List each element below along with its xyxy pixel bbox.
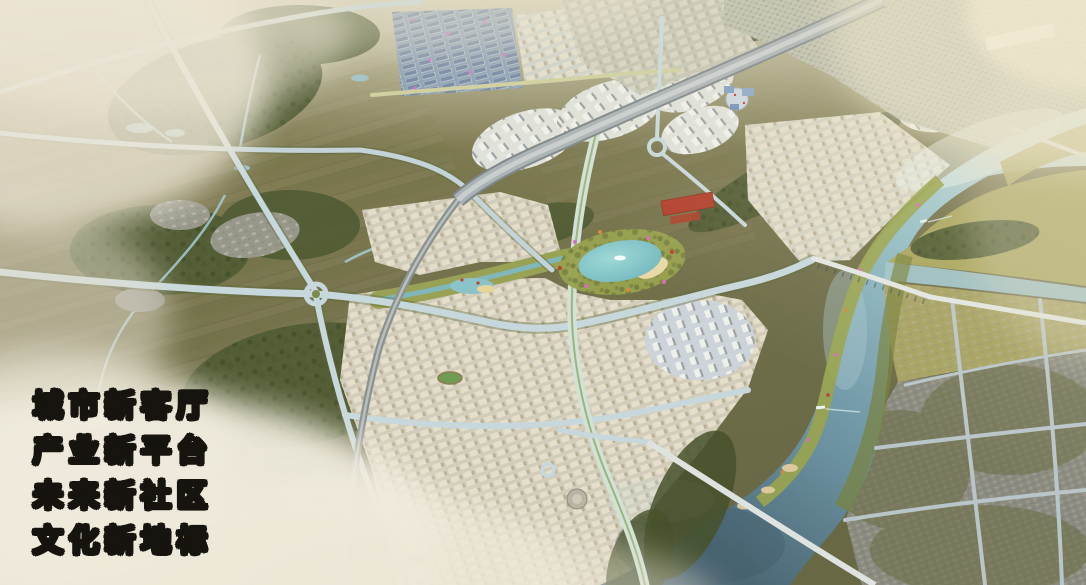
- masterplan-poster: 城市新客厅 产业新平台 未来新社区 文化新地标: [0, 0, 1086, 585]
- slogan-overlay: 城市新客厅 产业新平台 未来新社区 文化新地标: [33, 384, 213, 564]
- slogan-line-2: 产业新平台: [33, 429, 213, 474]
- slogan-line-3: 未来新社区: [33, 474, 213, 519]
- slogan-line-1: 城市新客厅: [33, 384, 213, 429]
- slogan-line-4: 文化新地标: [33, 519, 213, 564]
